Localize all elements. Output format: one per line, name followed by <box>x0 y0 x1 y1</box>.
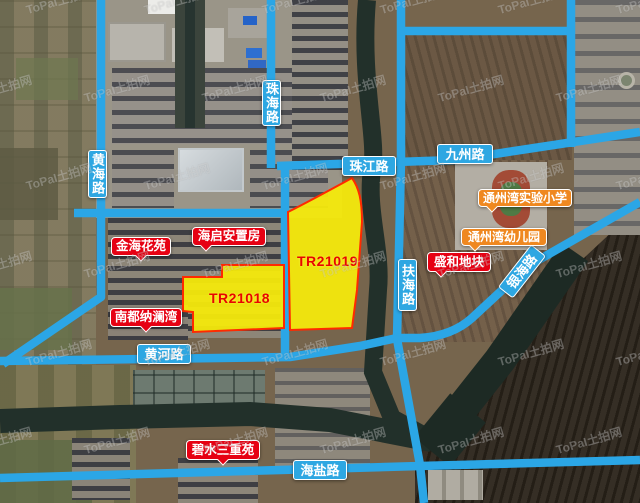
parcel-id-TR21018: TR21018 <box>209 290 270 306</box>
road-label-huanghai: 黄海路 <box>88 150 107 198</box>
road-label-zhujiang: 珠江路 <box>342 156 396 176</box>
marker-tongzhouwan-kindergarten[interactable]: 通州湾幼儿园 <box>461 228 547 246</box>
road-label-haiyan: 海盐路 <box>293 460 347 480</box>
road-label-fuhai: 扶海路 <box>398 259 417 311</box>
road-label-jiuzhou: 九州路 <box>437 144 493 164</box>
marker-bishui-sanchongyuan[interactable]: 碧水三重苑 <box>186 440 260 460</box>
map-overlay-svg <box>0 0 640 503</box>
road-label-huanghe: 黄河路 <box>137 344 191 364</box>
road-huanghe-path <box>0 338 397 361</box>
marker-tongzhouwan-primary-school[interactable]: 通州湾实验小学 <box>478 189 572 207</box>
road-huanghai-path <box>3 0 101 364</box>
satellite-land-map[interactable]: TR21018 TR21019 珠海路 黄海路 珠江路 九州路 扶海路 银海路 … <box>0 0 640 503</box>
marker-shenghe-dikuai[interactable]: 盛和地块 <box>427 252 491 272</box>
marker-jinhai-huayuan[interactable]: 金海花苑 <box>111 237 171 256</box>
marker-haiqi-anzhifang[interactable]: 海启安置房 <box>192 227 266 246</box>
road-label-zhuhai: 珠海路 <box>262 80 281 126</box>
marker-nandu-nalanwan[interactable]: 南都纳澜湾 <box>110 308 182 327</box>
parcel-id-TR21019: TR21019 <box>297 253 358 269</box>
road-fuhai-path <box>397 160 401 339</box>
canal-mouth <box>432 408 468 452</box>
canal-horizontal <box>0 414 432 440</box>
